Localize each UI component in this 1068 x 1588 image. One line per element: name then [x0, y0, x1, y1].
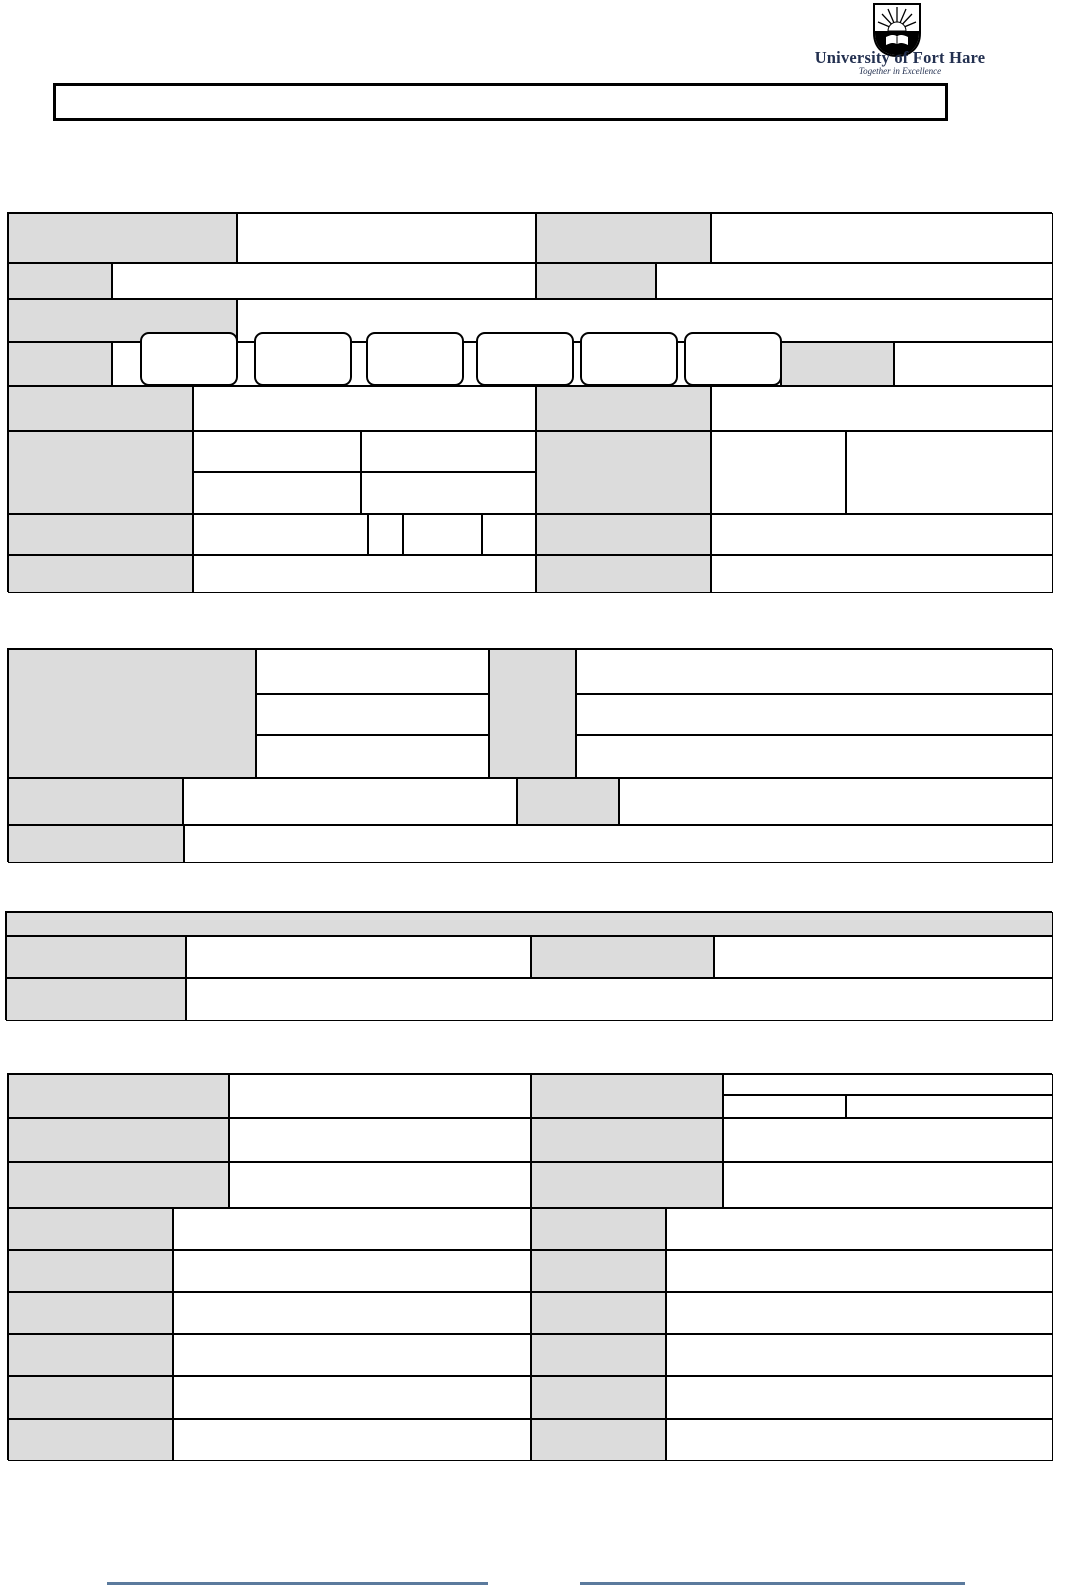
label-cell — [8, 1074, 229, 1118]
input-cell[interactable] — [723, 1118, 1053, 1162]
label-cell — [781, 342, 894, 386]
input-cell[interactable] — [229, 1118, 531, 1162]
label-cell — [536, 555, 711, 593]
input-cell[interactable] — [361, 431, 536, 472]
input-cell[interactable] — [183, 778, 517, 825]
input-cell[interactable] — [173, 1292, 531, 1334]
input-cell[interactable] — [666, 1419, 1053, 1461]
signature-line — [107, 1582, 488, 1585]
input-cell[interactable] — [193, 386, 536, 431]
input-cell[interactable] — [193, 472, 361, 514]
label-cell — [531, 936, 714, 978]
entry-box[interactable] — [476, 332, 574, 386]
signature-line — [580, 1582, 965, 1585]
label-cell — [8, 213, 237, 263]
label-cell — [536, 431, 711, 514]
label-cell — [531, 1250, 666, 1292]
input-cell[interactable] — [193, 514, 368, 555]
input-cell[interactable] — [576, 694, 1053, 735]
input-cell[interactable] — [894, 342, 1053, 386]
label-cell — [536, 514, 711, 555]
label-cell — [8, 1292, 173, 1334]
label-cell — [8, 263, 112, 299]
university-tagline: Together in Excellence — [795, 66, 1005, 76]
form-page: University of Fort Hare Together in Exce… — [0, 0, 1068, 1588]
label-cell — [517, 778, 619, 825]
label-cell — [8, 431, 193, 514]
input-cell[interactable] — [666, 1376, 1053, 1419]
label-cell — [536, 386, 711, 431]
section1-table — [7, 212, 1052, 592]
section2-table — [7, 648, 1052, 862]
input-cell[interactable] — [482, 514, 536, 555]
input-cell[interactable] — [711, 555, 1053, 593]
input-cell[interactable] — [173, 1208, 531, 1250]
entry-box[interactable] — [366, 332, 464, 386]
input-cell[interactable] — [723, 1074, 1053, 1095]
form-title-box — [53, 83, 948, 121]
input-cell[interactable] — [184, 825, 1053, 863]
label-cell — [8, 1376, 173, 1419]
label-cell — [8, 1419, 173, 1461]
input-cell[interactable] — [403, 514, 482, 555]
input-cell[interactable] — [256, 694, 489, 735]
label-cell — [8, 825, 184, 863]
input-cell[interactable] — [193, 555, 536, 593]
label-cell — [531, 1292, 666, 1334]
input-cell[interactable] — [173, 1334, 531, 1376]
input-cell[interactable] — [237, 213, 536, 263]
input-cell[interactable] — [723, 1095, 846, 1118]
entry-box[interactable] — [254, 332, 352, 386]
input-cell[interactable] — [173, 1250, 531, 1292]
section4-table — [7, 1073, 1052, 1460]
input-cell[interactable] — [846, 1095, 1053, 1118]
input-cell[interactable] — [656, 263, 1053, 299]
label-cell — [531, 1419, 666, 1461]
input-cell[interactable] — [666, 1208, 1053, 1250]
label-cell — [8, 778, 183, 825]
input-cell[interactable] — [846, 431, 1053, 514]
input-cell[interactable] — [112, 263, 536, 299]
input-cell[interactable] — [711, 431, 846, 514]
university-name: University of Fort Hare — [795, 48, 1005, 68]
label-cell — [8, 514, 193, 555]
label-cell — [8, 342, 112, 386]
input-cell[interactable] — [186, 936, 531, 978]
label-cell — [8, 1162, 229, 1208]
input-cell[interactable] — [368, 514, 403, 555]
input-cell[interactable] — [256, 649, 489, 694]
entry-box[interactable] — [580, 332, 678, 386]
label-cell — [536, 213, 711, 263]
label-cell — [8, 1118, 229, 1162]
input-cell[interactable] — [173, 1419, 531, 1461]
label-cell — [6, 936, 186, 978]
label-cell — [531, 1376, 666, 1419]
input-cell[interactable] — [711, 514, 1053, 555]
input-cell[interactable] — [256, 735, 489, 778]
input-cell[interactable] — [173, 1376, 531, 1419]
label-cell — [8, 386, 193, 431]
input-cell[interactable] — [229, 1074, 531, 1118]
section3-table — [5, 911, 1052, 1020]
input-cell[interactable] — [576, 735, 1053, 778]
label-cell — [8, 1250, 173, 1292]
label-cell — [8, 649, 256, 778]
input-cell[interactable] — [666, 1334, 1053, 1376]
label-cell — [531, 1118, 723, 1162]
label-cell — [531, 1074, 723, 1118]
label-cell — [8, 555, 193, 593]
input-cell[interactable] — [711, 213, 1053, 263]
entry-box[interactable] — [684, 332, 782, 386]
input-cell[interactable] — [714, 936, 1053, 978]
label-cell — [489, 649, 576, 778]
input-cell[interactable] — [723, 1162, 1053, 1208]
label-cell — [531, 1162, 723, 1208]
label-cell — [531, 1208, 666, 1250]
label-cell — [8, 1334, 173, 1376]
input-cell[interactable] — [193, 431, 361, 472]
label-cell — [6, 978, 186, 1021]
input-cell[interactable] — [229, 1162, 531, 1208]
label-cell — [531, 1334, 666, 1376]
input-cell[interactable] — [361, 472, 536, 514]
label-cell — [536, 263, 656, 299]
input-cell[interactable] — [186, 978, 1053, 1021]
section-header-bar — [6, 912, 1053, 936]
input-cell[interactable] — [711, 386, 1053, 431]
input-cell[interactable] — [666, 1292, 1053, 1334]
input-cell[interactable] — [576, 649, 1053, 694]
entry-box[interactable] — [140, 332, 238, 386]
label-cell — [8, 1208, 173, 1250]
input-cell[interactable] — [666, 1250, 1053, 1292]
input-cell[interactable] — [619, 778, 1053, 825]
